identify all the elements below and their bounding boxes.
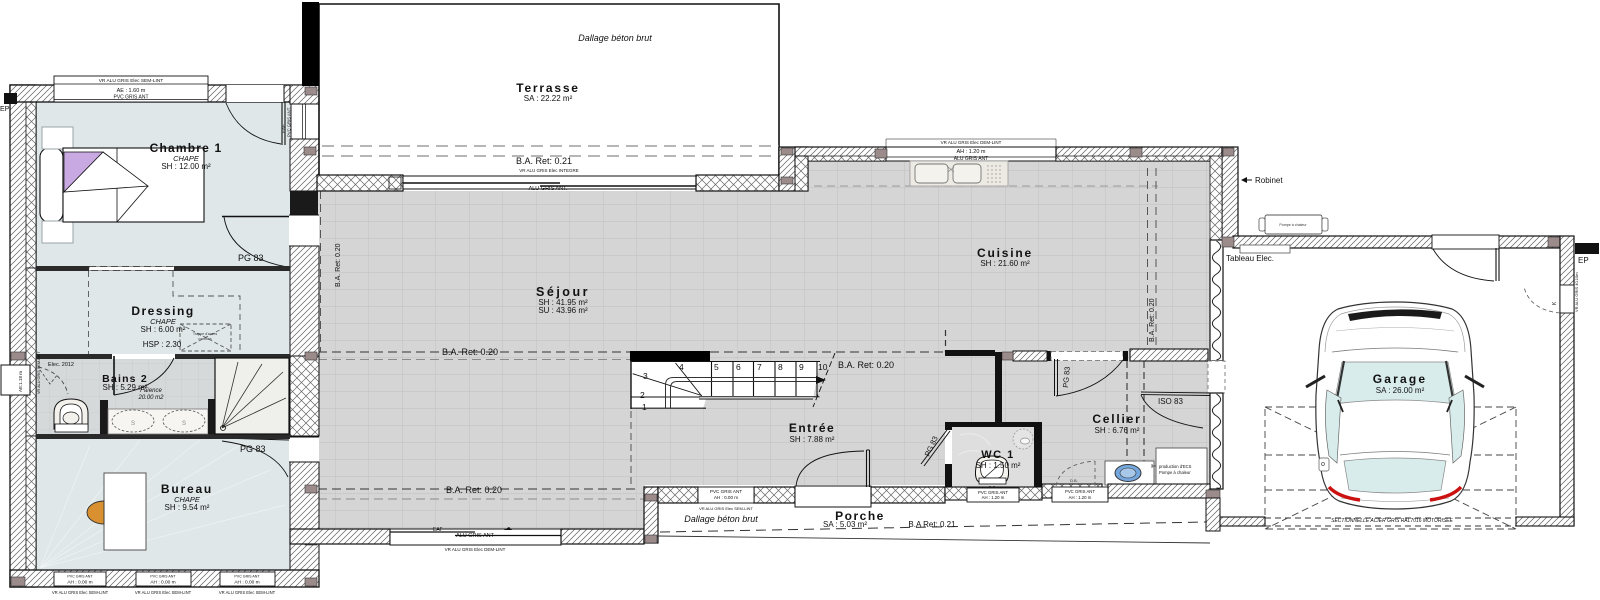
svg-text:D.B.: D.B.: [1070, 478, 1078, 483]
svg-text:Garage: Garage: [1373, 372, 1428, 386]
svg-text:SA : 5.03 m²: SA : 5.03 m²: [823, 520, 867, 529]
svg-text:AE:1.18 m: AE:1.18 m: [18, 371, 23, 392]
svg-text:Entrée: Entrée: [789, 421, 835, 435]
svg-text:B.A. Ret: 0.20: B.A. Ret: 0.20: [1149, 298, 1156, 342]
svg-text:S: S: [182, 421, 186, 427]
svg-text:PG 83: PG 83: [1061, 366, 1072, 388]
svg-text:VR ALU GRIS Elec SEM-LINT: VR ALU GRIS Elec SEM-LINT: [99, 78, 164, 84]
svg-text:production d'ECS: production d'ECS: [1159, 464, 1192, 469]
svg-text:5: 5: [714, 362, 719, 372]
svg-text:S: S: [131, 421, 135, 427]
svg-text:Pompe à chaleur: Pompe à chaleur: [1279, 223, 1307, 227]
svg-text:B.A. Ret: 0.20: B.A. Ret: 0.20: [335, 243, 342, 287]
svg-text:AH : 1.20 m: AH : 1.20 m: [956, 149, 985, 155]
svg-text:PVC GRIS ANT: PVC GRIS ANT: [234, 575, 260, 579]
svg-text:Tableau Elec.: Tableau Elec.: [1226, 254, 1274, 263]
svg-text:Dressing: Dressing: [131, 304, 194, 318]
svg-text:PG 83: PG 83: [240, 444, 266, 454]
svg-text:Robinet: Robinet: [1255, 176, 1283, 185]
svg-text:AE : 1.60 m: AE : 1.60 m: [117, 88, 146, 94]
svg-text:20.00 m2: 20.00 m2: [137, 395, 164, 401]
svg-text:PVC GRIS ANT: PVC GRIS ANT: [67, 575, 93, 579]
svg-text:SECTIONNELLE ACIER GRIS RAL701: SECTIONNELLE ACIER GRIS RAL7016 MOTORISE…: [1331, 518, 1453, 524]
svg-text:SA : 22.22 m²: SA : 22.22 m²: [524, 94, 573, 103]
svg-text:PVC GRIS ANT: PVC GRIS ANT: [1065, 489, 1095, 494]
svg-text:SH : 7.88 m²: SH : 7.88 m²: [790, 435, 835, 444]
svg-text:VR ALU GRIS Elec SEM-LINT: VR ALU GRIS Elec SEM-LINT: [219, 590, 276, 595]
svg-text:Faïence: Faïence: [140, 388, 162, 394]
svg-text:SH : 1.50 m²: SH : 1.50 m²: [976, 461, 1021, 470]
svg-text:Dallage béton brut: Dallage béton brut: [684, 514, 758, 524]
svg-text:B.A. Ret: 0.20: B.A. Ret: 0.20: [442, 347, 498, 357]
svg-text:4: 4: [679, 362, 684, 372]
svg-text:combles: combles: [198, 337, 212, 341]
svg-text:Cellier: Cellier: [1092, 412, 1141, 426]
svg-text:B.A. Ret: 0.21: B.A. Ret: 0.21: [516, 156, 572, 166]
svg-text:VR ALU GRIS Elec INTEGRE: VR ALU GRIS Elec INTEGRE: [519, 168, 579, 173]
svg-text:SH : 12.00 m²: SH : 12.00 m²: [161, 162, 211, 171]
svg-text:Chambre 1: Chambre 1: [150, 141, 223, 155]
svg-text:VR ALU GRIS Elec SEM-LINT: VR ALU GRIS Elec SEM-LINT: [52, 590, 109, 595]
svg-text:SH : 9.54 m²: SH : 9.54 m²: [165, 503, 210, 512]
svg-text:ALU GRIS ANT.: ALU GRIS ANT.: [529, 186, 568, 192]
svg-text:1: 1: [642, 402, 647, 412]
svg-text:SH : 21.60 m²: SH : 21.60 m²: [980, 259, 1030, 268]
svg-text:AH : 1.20 m: AH : 1.20 m: [1069, 495, 1092, 500]
svg-text:9: 9: [799, 362, 804, 372]
svg-text:2: 2: [640, 390, 645, 400]
svg-text:PG 83: PG 83: [238, 253, 264, 263]
svg-text:B.A. Ret: 0.20: B.A. Ret: 0.20: [838, 360, 894, 370]
svg-text:AH : 0.00 m: AH : 0.00 m: [714, 495, 738, 500]
svg-text:EP: EP: [0, 106, 10, 113]
svg-text:Elec. 2012: Elec. 2012: [48, 362, 74, 368]
svg-text:HSP : 2.30: HSP : 2.30: [143, 340, 182, 349]
svg-text:AH : 0.00 m: AH : 0.00 m: [67, 580, 92, 586]
svg-text:EP: EP: [1578, 256, 1589, 265]
svg-text:SU : 43.96 m²: SU : 43.96 m²: [538, 306, 588, 315]
svg-text:B.A Ret: 0.21: B.A Ret: 0.21: [908, 520, 956, 529]
svg-text:PVC GRIS ANT.: PVC GRIS ANT.: [287, 107, 292, 137]
svg-text:EAF: EAF: [433, 527, 443, 533]
svg-text:6: 6: [736, 362, 741, 372]
svg-text:AH : 0.00 m: AH : 0.00 m: [234, 580, 259, 586]
svg-text:AH : 0.00 m: AH : 0.00 m: [150, 580, 175, 586]
svg-text:VR ALU GRIS Elec DEM-LINT: VR ALU GRIS Elec DEM-LINT: [445, 547, 506, 552]
svg-text:VR ALU GRIS 40.10m: VR ALU GRIS 40.10m: [1574, 272, 1579, 312]
svg-text:8: 8: [778, 362, 783, 372]
svg-text:Cuisine: Cuisine: [977, 246, 1033, 260]
svg-text:7: 7: [757, 362, 762, 372]
svg-text:VR ALU GRIS Elec SEM-LINT: VR ALU GRIS Elec SEM-LINT: [699, 506, 753, 511]
svg-text:VR ALU GRIS Elec SEM-LINT: VR ALU GRIS Elec SEM-LINT: [135, 590, 192, 595]
svg-text:Dallage béton brut: Dallage béton brut: [578, 33, 652, 43]
svg-text:Terrasse: Terrasse: [516, 81, 580, 95]
svg-text:Trappe d'accès: Trappe d'accès: [193, 332, 218, 336]
svg-text:10: 10: [818, 362, 828, 372]
svg-text:Bureau: Bureau: [161, 482, 213, 496]
svg-text:SA : 26.00 m²: SA : 26.00 m²: [1376, 386, 1425, 395]
svg-text:3: 3: [643, 371, 648, 381]
svg-text:B.A. Ret: 0.20: B.A. Ret: 0.20: [446, 485, 502, 495]
svg-text:VR ALU GRIS SEM-LINT: VR ALU GRIS SEM-LINT: [37, 351, 41, 394]
svg-text:ALU GRIS ANT: ALU GRIS ANT: [456, 533, 495, 539]
svg-text:PVC GRIS ANT: PVC GRIS ANT: [113, 95, 148, 101]
svg-text:SH : 6.76 m²: SH : 6.76 m²: [1095, 426, 1140, 435]
svg-text:ISO 83: ISO 83: [1158, 397, 1183, 406]
svg-text:PVC GRIS ANT: PVC GRIS ANT: [710, 489, 742, 494]
svg-text:SH : 6.00 m²: SH : 6.00 m²: [141, 325, 186, 334]
svg-text:AH : 1.20 m: AH : 1.20 m: [982, 495, 1005, 500]
svg-text:PVC GRIS ANT: PVC GRIS ANT: [150, 575, 176, 579]
svg-text:VR ALU GRIS Elec DEM-LINT: VR ALU GRIS Elec DEM-LINT: [941, 140, 1002, 145]
svg-text:WC 1: WC 1: [981, 449, 1015, 461]
svg-text:EAF: EAF: [281, 124, 286, 133]
svg-text:Séjour: Séjour: [536, 285, 590, 299]
svg-text:Pompe à chaleur: Pompe à chaleur: [1159, 470, 1191, 475]
